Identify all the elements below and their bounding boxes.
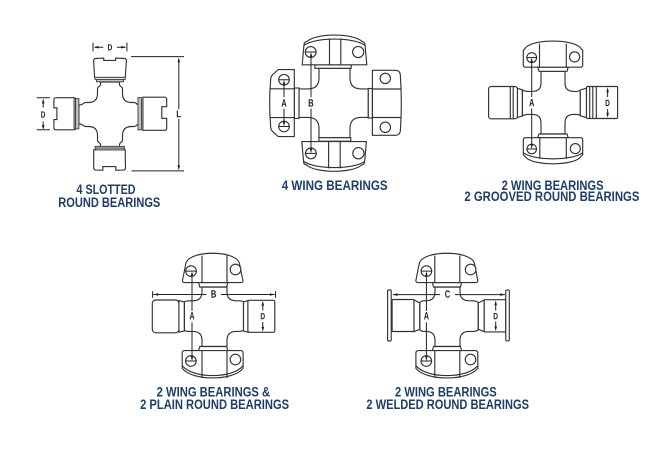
svg-text:2 PLAIN ROUND BEARINGS: 2 PLAIN ROUND BEARINGS <box>140 397 289 412</box>
svg-text:2 WELDED ROUND BEARINGS: 2 WELDED ROUND BEARINGS <box>366 397 529 412</box>
svg-text:2 GROOVED ROUND BEARINGS: 2 GROOVED ROUND BEARINGS <box>464 189 639 204</box>
svg-text:4 WING BEARINGS: 4 WING BEARINGS <box>282 178 388 193</box>
svg-text:ROUND BEARINGS: ROUND BEARINGS <box>58 195 160 210</box>
